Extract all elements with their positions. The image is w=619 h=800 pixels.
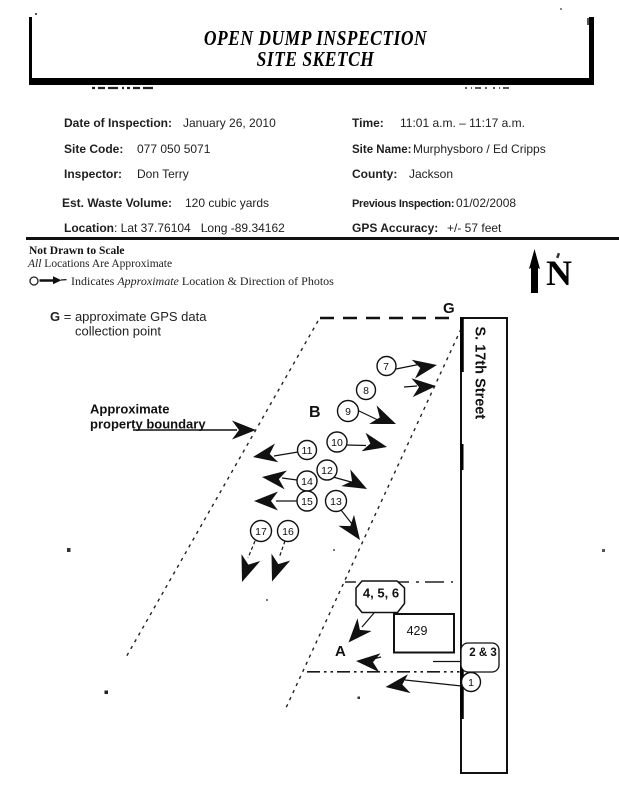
svg-text:10: 10 [331, 437, 343, 449]
svg-text:17: 17 [255, 526, 267, 538]
svg-text:Approximate: Approximate [90, 402, 169, 417]
svg-text:13: 13 [330, 496, 342, 508]
svg-text:12: 12 [321, 465, 333, 477]
svg-text:9: 9 [345, 406, 351, 418]
svg-text:1: 1 [468, 677, 474, 689]
svg-text:G: G [443, 300, 455, 317]
svg-text:2 & 3: 2 & 3 [469, 647, 497, 659]
svg-text:G = approximate GPS data: G = approximate GPS data [50, 309, 207, 324]
svg-text:11: 11 [302, 445, 313, 457]
svg-text:16: 16 [282, 526, 294, 538]
svg-text:A: A [335, 643, 346, 660]
svg-text:14: 14 [301, 476, 313, 488]
svg-text:7: 7 [383, 361, 389, 373]
svg-text:429: 429 [407, 624, 428, 638]
svg-text:B: B [309, 404, 321, 421]
svg-text:N: N [546, 253, 572, 293]
svg-text:property boundary: property boundary [90, 417, 206, 432]
svg-text:8: 8 [363, 385, 369, 397]
svg-text:15: 15 [301, 496, 313, 508]
svg-text:S. 17th Street: S. 17th Street [472, 327, 488, 420]
svg-text:collection point: collection point [75, 324, 161, 339]
svg-text:4, 5, 6: 4, 5, 6 [363, 586, 399, 601]
